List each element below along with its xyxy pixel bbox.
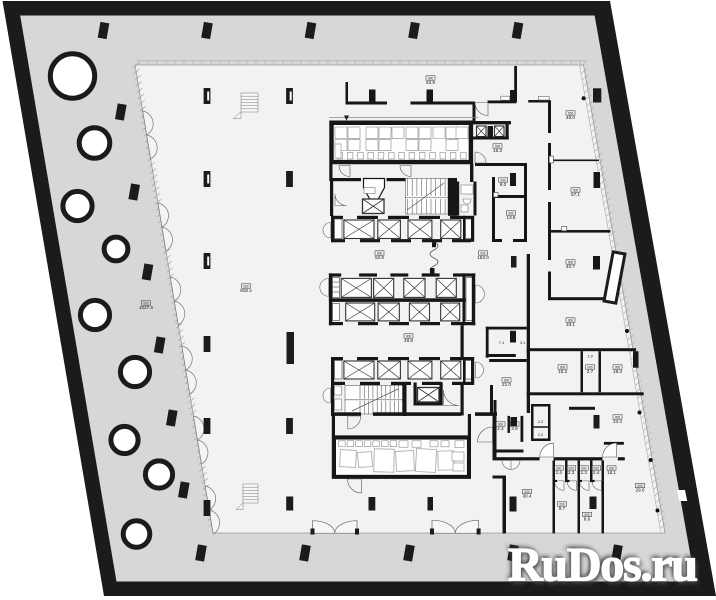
svg-text:8.6: 8.6: [584, 517, 591, 522]
svg-text:7.1: 7.1: [499, 340, 505, 345]
svg-text:818.4: 818.4: [240, 288, 252, 293]
svg-text:57.1: 57.1: [571, 192, 580, 197]
svg-text:13.8: 13.8: [507, 215, 516, 220]
svg-text:40.7: 40.7: [566, 264, 575, 269]
svg-text:62.9: 62.9: [426, 80, 435, 85]
svg-text:2.4: 2.4: [556, 470, 563, 475]
svg-text:153.0: 153.0: [477, 255, 489, 260]
svg-text:RuDos.ru: RuDos.ru: [508, 539, 698, 592]
svg-text:1027.6: 1027.6: [139, 305, 153, 310]
svg-text:19.3: 19.3: [613, 369, 622, 374]
svg-text:2.4: 2.4: [497, 426, 504, 431]
svg-text:49.8: 49.8: [404, 338, 413, 343]
svg-text:33.1: 33.1: [566, 322, 575, 327]
svg-text:2.4: 2.4: [593, 470, 600, 475]
svg-text:30.4: 30.4: [523, 494, 532, 499]
svg-text:3.9: 3.9: [511, 426, 518, 431]
svg-text:15.3: 15.3: [558, 369, 567, 374]
svg-text:2.2: 2.2: [538, 433, 543, 437]
svg-text:3.1: 3.1: [520, 340, 526, 345]
svg-text:9.7: 9.7: [559, 506, 566, 511]
svg-text:16.3: 16.3: [493, 148, 502, 153]
svg-text:1.9: 1.9: [587, 354, 593, 359]
svg-text:18.1: 18.1: [607, 470, 616, 475]
svg-text:2.2: 2.2: [538, 420, 543, 424]
svg-text:9.0: 9.0: [500, 182, 507, 187]
svg-text:21.0: 21.0: [502, 382, 511, 387]
svg-text:2.3: 2.3: [581, 470, 588, 475]
svg-text:2.7: 2.7: [587, 369, 594, 374]
svg-text:2.3: 2.3: [568, 470, 575, 475]
svg-text:52.8: 52.8: [375, 255, 384, 260]
svg-text:24.4: 24.4: [613, 419, 622, 424]
svg-text:29.0: 29.0: [636, 488, 645, 493]
svg-text:46.0: 46.0: [566, 115, 575, 120]
